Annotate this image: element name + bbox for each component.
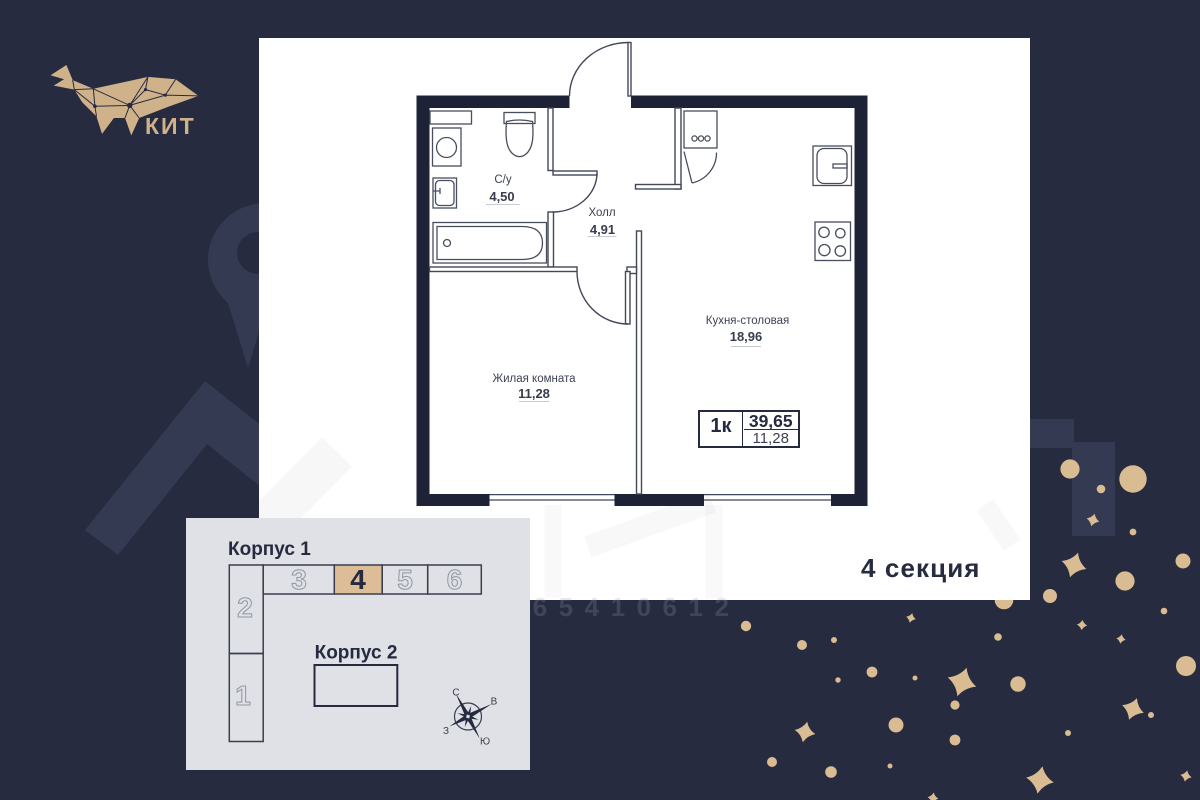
svg-text:В: В [491, 696, 498, 707]
svg-text:3: 3 [291, 564, 307, 595]
svg-text:КИТ: КИТ [145, 113, 196, 139]
svg-text:2: 2 [237, 592, 253, 623]
svg-text:5: 5 [397, 564, 413, 595]
svg-text:Ю: Ю [480, 736, 490, 747]
svg-text:С: С [452, 687, 459, 698]
svg-text:1: 1 [235, 680, 251, 711]
svg-text:З: З [443, 726, 449, 737]
svg-text:4: 4 [350, 564, 366, 595]
svg-text:6: 6 [447, 564, 463, 595]
svg-text:Корпус 2: Корпус 2 [315, 642, 398, 663]
